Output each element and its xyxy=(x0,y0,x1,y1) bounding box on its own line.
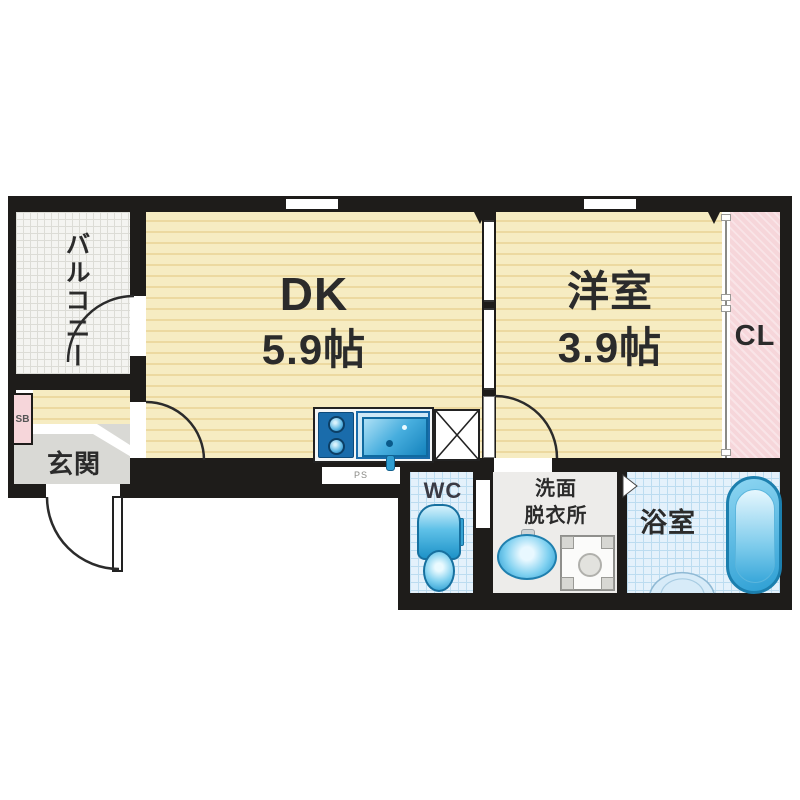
bathtub-inner xyxy=(735,489,775,583)
pan-corner xyxy=(561,577,574,590)
window-top-right xyxy=(584,199,636,209)
pipe-space-label: PS xyxy=(322,470,400,480)
entrance-hall-floor xyxy=(33,388,132,426)
western-room-size-label: 3.9帖 xyxy=(505,324,715,372)
wc-label: WC xyxy=(412,478,474,503)
wall-top xyxy=(8,196,792,212)
closet-door-cap xyxy=(721,305,731,312)
kitchen-drain xyxy=(386,440,393,447)
western-door-opening xyxy=(494,458,552,472)
wall-balcony-bottom xyxy=(8,374,132,390)
floor-plan-canvas: SB xyxy=(0,0,800,800)
wall-left-balcony xyxy=(8,196,16,398)
pan-corner xyxy=(561,536,574,549)
bathtub-icon xyxy=(726,476,782,594)
entrance-label: 玄関 xyxy=(32,450,116,480)
washroom-label-line1: 洗面 xyxy=(503,476,609,503)
western-door-panel xyxy=(483,396,495,458)
closet-door-cap xyxy=(721,214,731,221)
shoe-box: SB xyxy=(12,393,33,445)
kitchen-sparkle xyxy=(402,425,407,430)
western-room-label: 洋室 xyxy=(505,268,715,316)
closet-label: CL xyxy=(732,320,778,353)
kitchen-sink-basin xyxy=(362,417,428,457)
washroom-label: 洗面 脱衣所 xyxy=(503,476,609,530)
pan-corner xyxy=(601,577,614,590)
burner-icon xyxy=(328,438,345,455)
washroom-label-line2: 脱衣所 xyxy=(503,503,609,530)
kitchen-sink-icon xyxy=(356,411,430,459)
front-door-panel xyxy=(112,496,123,572)
kitchen-faucet-icon xyxy=(386,455,395,471)
wall-wet-bottom xyxy=(398,593,792,610)
dk-label: DK xyxy=(214,268,414,321)
front-door-opening xyxy=(46,484,120,498)
window-top-left xyxy=(286,199,338,209)
pan-drain xyxy=(578,553,602,577)
closet-door-cap xyxy=(721,294,731,301)
washbasin-icon xyxy=(497,534,557,580)
closet-door-cap xyxy=(721,449,731,456)
balcony-door-opening xyxy=(130,296,146,356)
sliding-door-panel-lower xyxy=(484,308,494,390)
dk-size-label: 5.9帖 xyxy=(214,326,414,374)
refrigerator-space xyxy=(434,409,480,461)
toilet-bowl xyxy=(423,550,455,592)
wall-balcony-divider-mid xyxy=(130,356,146,402)
sliding-door-panel-upper xyxy=(484,220,494,302)
wc-door-opening xyxy=(476,480,490,528)
wall-balcony-divider-upper xyxy=(130,212,146,296)
front-door-arc xyxy=(47,497,119,569)
pan-corner xyxy=(601,536,614,549)
stove-icon xyxy=(318,412,354,458)
washing-machine-pan xyxy=(560,535,615,591)
closet-door-track xyxy=(725,214,727,458)
entrance-hall-door-opening xyxy=(130,402,146,458)
bathroom-label: 浴室 xyxy=(630,508,706,539)
shoe-box-label: SB xyxy=(16,414,30,425)
burner-icon xyxy=(328,416,345,433)
wall-washroom-bath xyxy=(617,470,627,593)
balcony-label: バルコニー xyxy=(52,226,90,376)
